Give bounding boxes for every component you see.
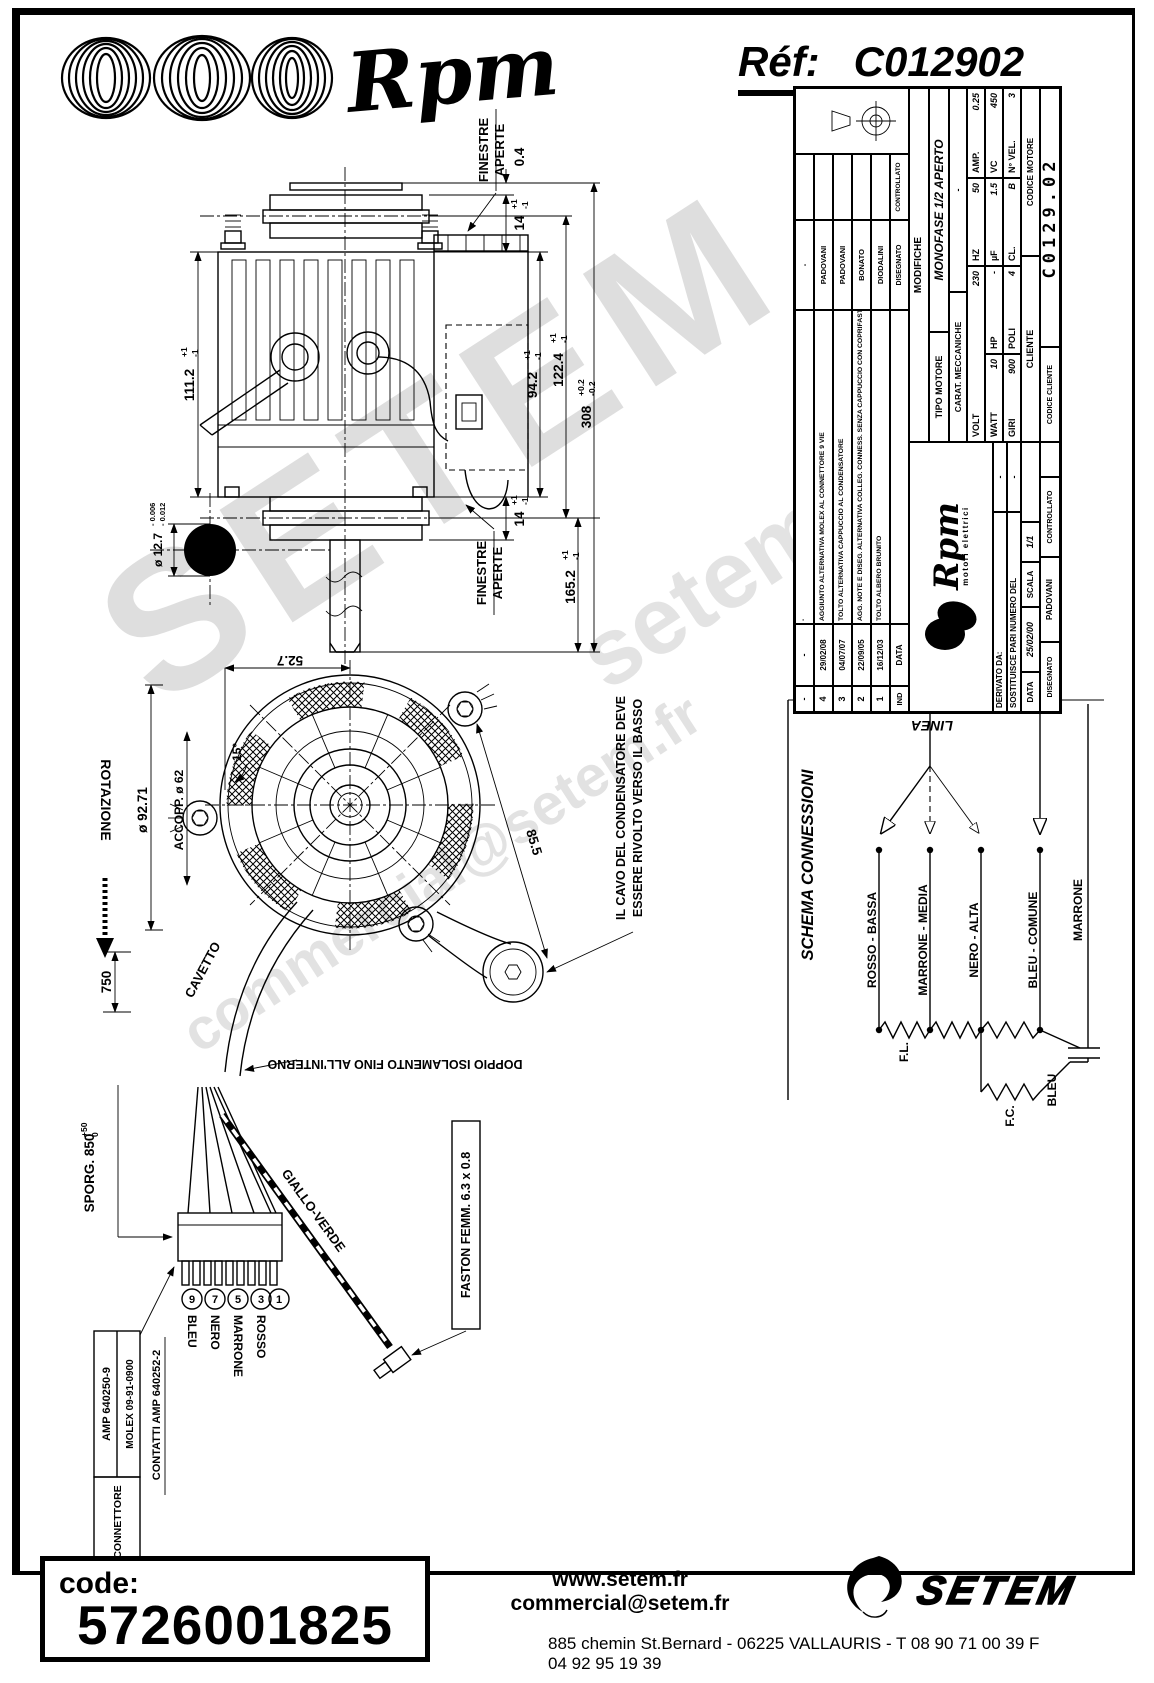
- dim-94-tm: -1: [533, 352, 543, 360]
- dim-308: 308: [579, 405, 594, 428]
- giallo-verde-wire: GIALLO-VERDE: [222, 1115, 411, 1381]
- code-box: code: 5726001825: [40, 1556, 430, 1662]
- dim-accopp-62: ACCOPP. ø 62: [172, 769, 186, 850]
- ref-value: C012902: [854, 38, 1024, 86]
- finestre-aperte-top2: APERTE: [492, 123, 507, 176]
- setem-brand-text: SETEM: [913, 1567, 1080, 1612]
- faston-label: FASTON FEMM. 6.3 x 0.8: [412, 1121, 480, 1355]
- connettore-label: CONNETTORE: [112, 1485, 124, 1558]
- vc-label: VC: [990, 160, 999, 173]
- wire-fan: [188, 1087, 276, 1213]
- volt-label: VOLT: [972, 414, 981, 437]
- mod-name: PADOVANI: [833, 220, 852, 310]
- titleblock-logo: Rpm motori elettrici: [909, 442, 993, 712]
- dim-94-tp: +1: [522, 350, 532, 360]
- watt-label: WATT: [990, 412, 999, 437]
- cl-value: B: [1008, 183, 1017, 190]
- dim-sporg-tp: +50: [79, 1122, 89, 1137]
- cl-label: CL.: [1008, 247, 1017, 262]
- dim-9271: ø 92.71: [135, 787, 150, 833]
- mod-desc: AGGIUNTO ALTERNATIVA MOLEX AL CONNETTORE…: [814, 310, 833, 624]
- footer-address: 885 chemin St.Bernard - 06225 VALLAURIS …: [548, 1634, 1058, 1674]
- finestre-aperte-top: FINESTRE: [476, 118, 491, 183]
- dim-94: 94.2: [525, 372, 540, 398]
- titleblock-brand: Rpm: [932, 502, 963, 590]
- wire-marrone2: MARRONE: [1071, 879, 1085, 941]
- connector-body: [178, 1213, 282, 1285]
- mod-date: -: [795, 624, 814, 686]
- mods-header-disegnato: DISEGNATO: [890, 220, 909, 310]
- modifiche-header: MODIFICHE: [909, 88, 929, 442]
- connector-drawing: 9 7 5 3 1 BLEU NERO MARRONE ROSSO SPORG.…: [60, 1085, 490, 1595]
- codice-cliente-label: CODICE CLIENTE: [1040, 347, 1060, 442]
- titleblock-brand-sub: motori elettrici: [962, 502, 970, 590]
- wire-bleu: BLEU: [185, 1315, 199, 1348]
- dim-122: 122.4: [551, 353, 566, 387]
- mod-name: PADOVANI: [814, 220, 833, 310]
- amp-label: AMP.: [972, 152, 981, 173]
- schema-wiring: [876, 704, 1100, 1100]
- cavetto-label: CAVETTO: [182, 939, 224, 1000]
- contatti-label: CONTATTI AMP 640252-2: [151, 1350, 163, 1480]
- dim-111: 111.2: [182, 369, 197, 401]
- wire-marrone: MARRONE: [231, 1315, 245, 1377]
- front-view-dimensions: 52.7 ø 92.71 ACCOPP. ø 62 15° 85.5 ROTAZ…: [96, 653, 645, 1071]
- mod-desc: AGG. NOTE E DISEG. ALTERNATIVA COLLEG. C…: [852, 310, 871, 624]
- dim-111-tm: -1: [190, 349, 200, 357]
- tipo-motore-value: MONOFASE 1/2 APERTO: [929, 88, 949, 332]
- data-label: DATA: [1021, 672, 1040, 712]
- poli-value: 4: [1008, 271, 1017, 276]
- dim-122-tm: -1: [559, 335, 569, 343]
- codice-motore-value: C0129.02: [1040, 88, 1060, 347]
- molex-connector-ref: MOLEX 09-91-0900: [125, 1359, 136, 1449]
- uf-label: µF: [990, 250, 999, 261]
- pin-3: 3: [258, 1294, 264, 1306]
- coil-icon: [923, 600, 979, 652]
- nvel-label: N° VEL.: [1008, 140, 1017, 173]
- dim-165-tm: -1: [571, 552, 581, 560]
- controllato-label: CONTROLLATO: [1040, 477, 1060, 557]
- dim-308-tp: +0.2: [576, 379, 586, 396]
- nvel-value: 3: [1008, 93, 1017, 98]
- rotazione-label: ROTAZIONE: [98, 759, 114, 840]
- setem-logo: SETEM: [835, 1548, 1065, 1630]
- wire-nero-alta: NERO - ALTA: [967, 902, 981, 977]
- condensatore-note-1: IL CAVO DEL CONDENSATORE DEVE: [614, 696, 628, 920]
- mod-ind: 3: [833, 686, 852, 712]
- volt-value: 230: [972, 271, 981, 286]
- pin-5: 5: [235, 1294, 241, 1306]
- dim-122-tp: +1: [548, 333, 558, 343]
- side-view-drawing: 111.2+1-1 14+1-1 0.4 94.2+1-1 122.4+1-1 …: [130, 95, 625, 680]
- dim-14-top-tm: -1: [520, 201, 530, 209]
- mod-date: 22/09/05: [852, 624, 871, 686]
- cliente-label: CLIENTE: [1021, 256, 1040, 442]
- dim-14-top-tp: +1: [509, 199, 519, 209]
- mod-date: 16/12/03: [871, 624, 890, 686]
- wire-rosso-bassa: ROSSO - BASSA: [865, 892, 879, 988]
- wire-rosso: ROSSO: [254, 1315, 268, 1358]
- hp-label: HP: [990, 336, 999, 349]
- code-value: 5726001825: [45, 1593, 425, 1657]
- linea-label: LINEA: [911, 718, 953, 734]
- carat-value: -: [949, 88, 967, 292]
- watt-value: 10: [990, 359, 999, 369]
- dim-04: 0.4: [512, 147, 527, 166]
- ref-label: Réf:: [738, 38, 820, 86]
- mod-desc: -: [795, 310, 814, 624]
- mod-ind: 2: [852, 686, 871, 712]
- mod-desc: TOLTO ALBERO BRUNITO: [871, 310, 890, 624]
- front-view-drawing: 52.7 ø 92.71 ACCOPP. ø 62 15° 85.5 ROTAZ…: [85, 640, 655, 1095]
- mod-ind: 1: [871, 686, 890, 712]
- doppio-isolamento-note: DOPPIO ISOLAMENTO FINO ALL'INTERNO: [267, 1057, 522, 1071]
- footer-website: www.setem.fr: [470, 1568, 770, 1592]
- poli-label: POLI: [1008, 328, 1017, 349]
- fl-label: F.L.: [897, 1042, 911, 1062]
- dim-527: 52.7: [277, 653, 303, 668]
- tipo-motore-label: TIPO MOTORE: [929, 332, 949, 442]
- giri-label: GIRI: [1008, 418, 1017, 437]
- wire-bleu-comune: BLEU - COMUNE: [1026, 892, 1040, 989]
- dim-127-tm: - 0.012: [158, 503, 167, 526]
- dim-127: ø 12.7: [151, 533, 165, 567]
- carat-label: CARAT. MECCANICHE: [949, 292, 967, 442]
- mods-header-data: DATA: [890, 624, 909, 686]
- dim-111-tp: +1: [179, 347, 189, 357]
- wire-bleu: BLEU: [1045, 1074, 1059, 1107]
- vc-value: 450: [990, 93, 999, 108]
- pin-7: 7: [212, 1294, 218, 1306]
- derivato-value: -: [993, 442, 1007, 512]
- dim-165-tp: +1: [560, 550, 570, 560]
- dim-308-tm: -0.2: [587, 381, 597, 396]
- wire-marrone-media: MARRONE - MEDIA: [916, 884, 930, 996]
- pin-9: 9: [189, 1294, 195, 1306]
- codice-motore-label: CODICE MOTORE: [1021, 88, 1040, 256]
- dim-14-bottom-tm: -1: [520, 497, 530, 505]
- finestre-aperte-bottom2: APERTE: [490, 546, 505, 599]
- mod-name: BONATO: [852, 220, 871, 310]
- mod-name: DIODALINI: [871, 220, 890, 310]
- condensatore-note-2: ESSERE RIVOLTO VERSO IL BASSO: [631, 699, 645, 917]
- scala-label: SCALA: [1021, 562, 1040, 607]
- mod-date: 04/07/07: [833, 624, 852, 686]
- first-angle-projection-icon: [828, 99, 902, 143]
- sostituisce-value: -: [1007, 442, 1021, 512]
- motor-side-geometry: [150, 167, 530, 670]
- mod-date: 29/02/08: [814, 624, 833, 686]
- mod-desc: TOLTO ALTERNATIVA CAPPUCCIO AL CONDENSAT…: [833, 310, 852, 624]
- mods-header-ind: IND: [890, 686, 909, 712]
- dim-14-bottom: 14: [512, 511, 527, 527]
- disegnato-label: DISEGNATO: [1040, 642, 1060, 712]
- hz-value: 50: [972, 183, 981, 193]
- finestre-aperte-bottom: FINESTRE: [474, 541, 489, 606]
- schema-title: SCHEMA CONNESSIONI: [799, 769, 817, 960]
- uf-value: 1.5: [990, 183, 999, 196]
- dim-855: 85.5: [523, 827, 545, 857]
- sostituisce-label: SOSTITUISCE PARI NUMERO DEL: [1007, 512, 1021, 712]
- pin-1: 1: [276, 1294, 282, 1306]
- derivato-label: DERIVATO DA:: [993, 512, 1007, 712]
- mods-header-controllato: CONTROLLATO: [890, 154, 909, 220]
- setem-swoosh-icon: [847, 1556, 902, 1612]
- footer-email: commercial@setem.fr: [470, 1592, 770, 1616]
- dim-14-top: 14: [512, 215, 527, 231]
- hz-label: HZ: [972, 249, 981, 261]
- disegnato-value: PADOVANI: [1040, 557, 1060, 642]
- motor-front-geometry: [168, 660, 543, 1076]
- wiring-schema: SCHEMA CONNESSIONI LINEA ROSSO - BASSA M…: [782, 700, 1104, 1170]
- mod-name: -: [795, 220, 814, 310]
- dim-165: 165.2: [563, 570, 578, 604]
- wire-color-labels: BLEU NERO MARRONE ROSSO: [185, 1315, 268, 1377]
- hp-value: -: [990, 271, 999, 274]
- mod-ind: -: [795, 686, 814, 712]
- amp-connector-ref: AMP 640250-9: [101, 1367, 113, 1441]
- dim-sporg-850: SPORG. 850: [82, 1134, 97, 1213]
- dim-127-tp: - 0.006: [148, 503, 157, 526]
- dim-sporg-tm: 0: [90, 1132, 100, 1137]
- dim-15deg: 15°: [230, 743, 244, 761]
- faston-text: FASTON FEMM. 6.3 x 0.8: [459, 1152, 473, 1298]
- connector-table: AMP 640250-9 MOLEX 09-91-0900 CONNETTORE…: [94, 1267, 174, 1567]
- title-block: - - - - 4 29/02/08 AGGIUNTO ALTERNATIVA …: [795, 88, 1060, 712]
- pin-numbers: 9 7 5 3 1: [182, 1289, 289, 1309]
- dim-14-bottom-tp: +1: [509, 495, 519, 505]
- dim-750: 750: [99, 971, 114, 994]
- data-value: 25/02/00: [1021, 607, 1040, 672]
- fc-label: F.C.: [1003, 1105, 1017, 1126]
- mod-ind: 4: [814, 686, 833, 712]
- scala-value: 1/1: [1021, 522, 1040, 562]
- wire-nero: NERO: [208, 1315, 222, 1350]
- amp-value: 0.25: [972, 93, 981, 111]
- giri-value: 900: [1008, 359, 1017, 374]
